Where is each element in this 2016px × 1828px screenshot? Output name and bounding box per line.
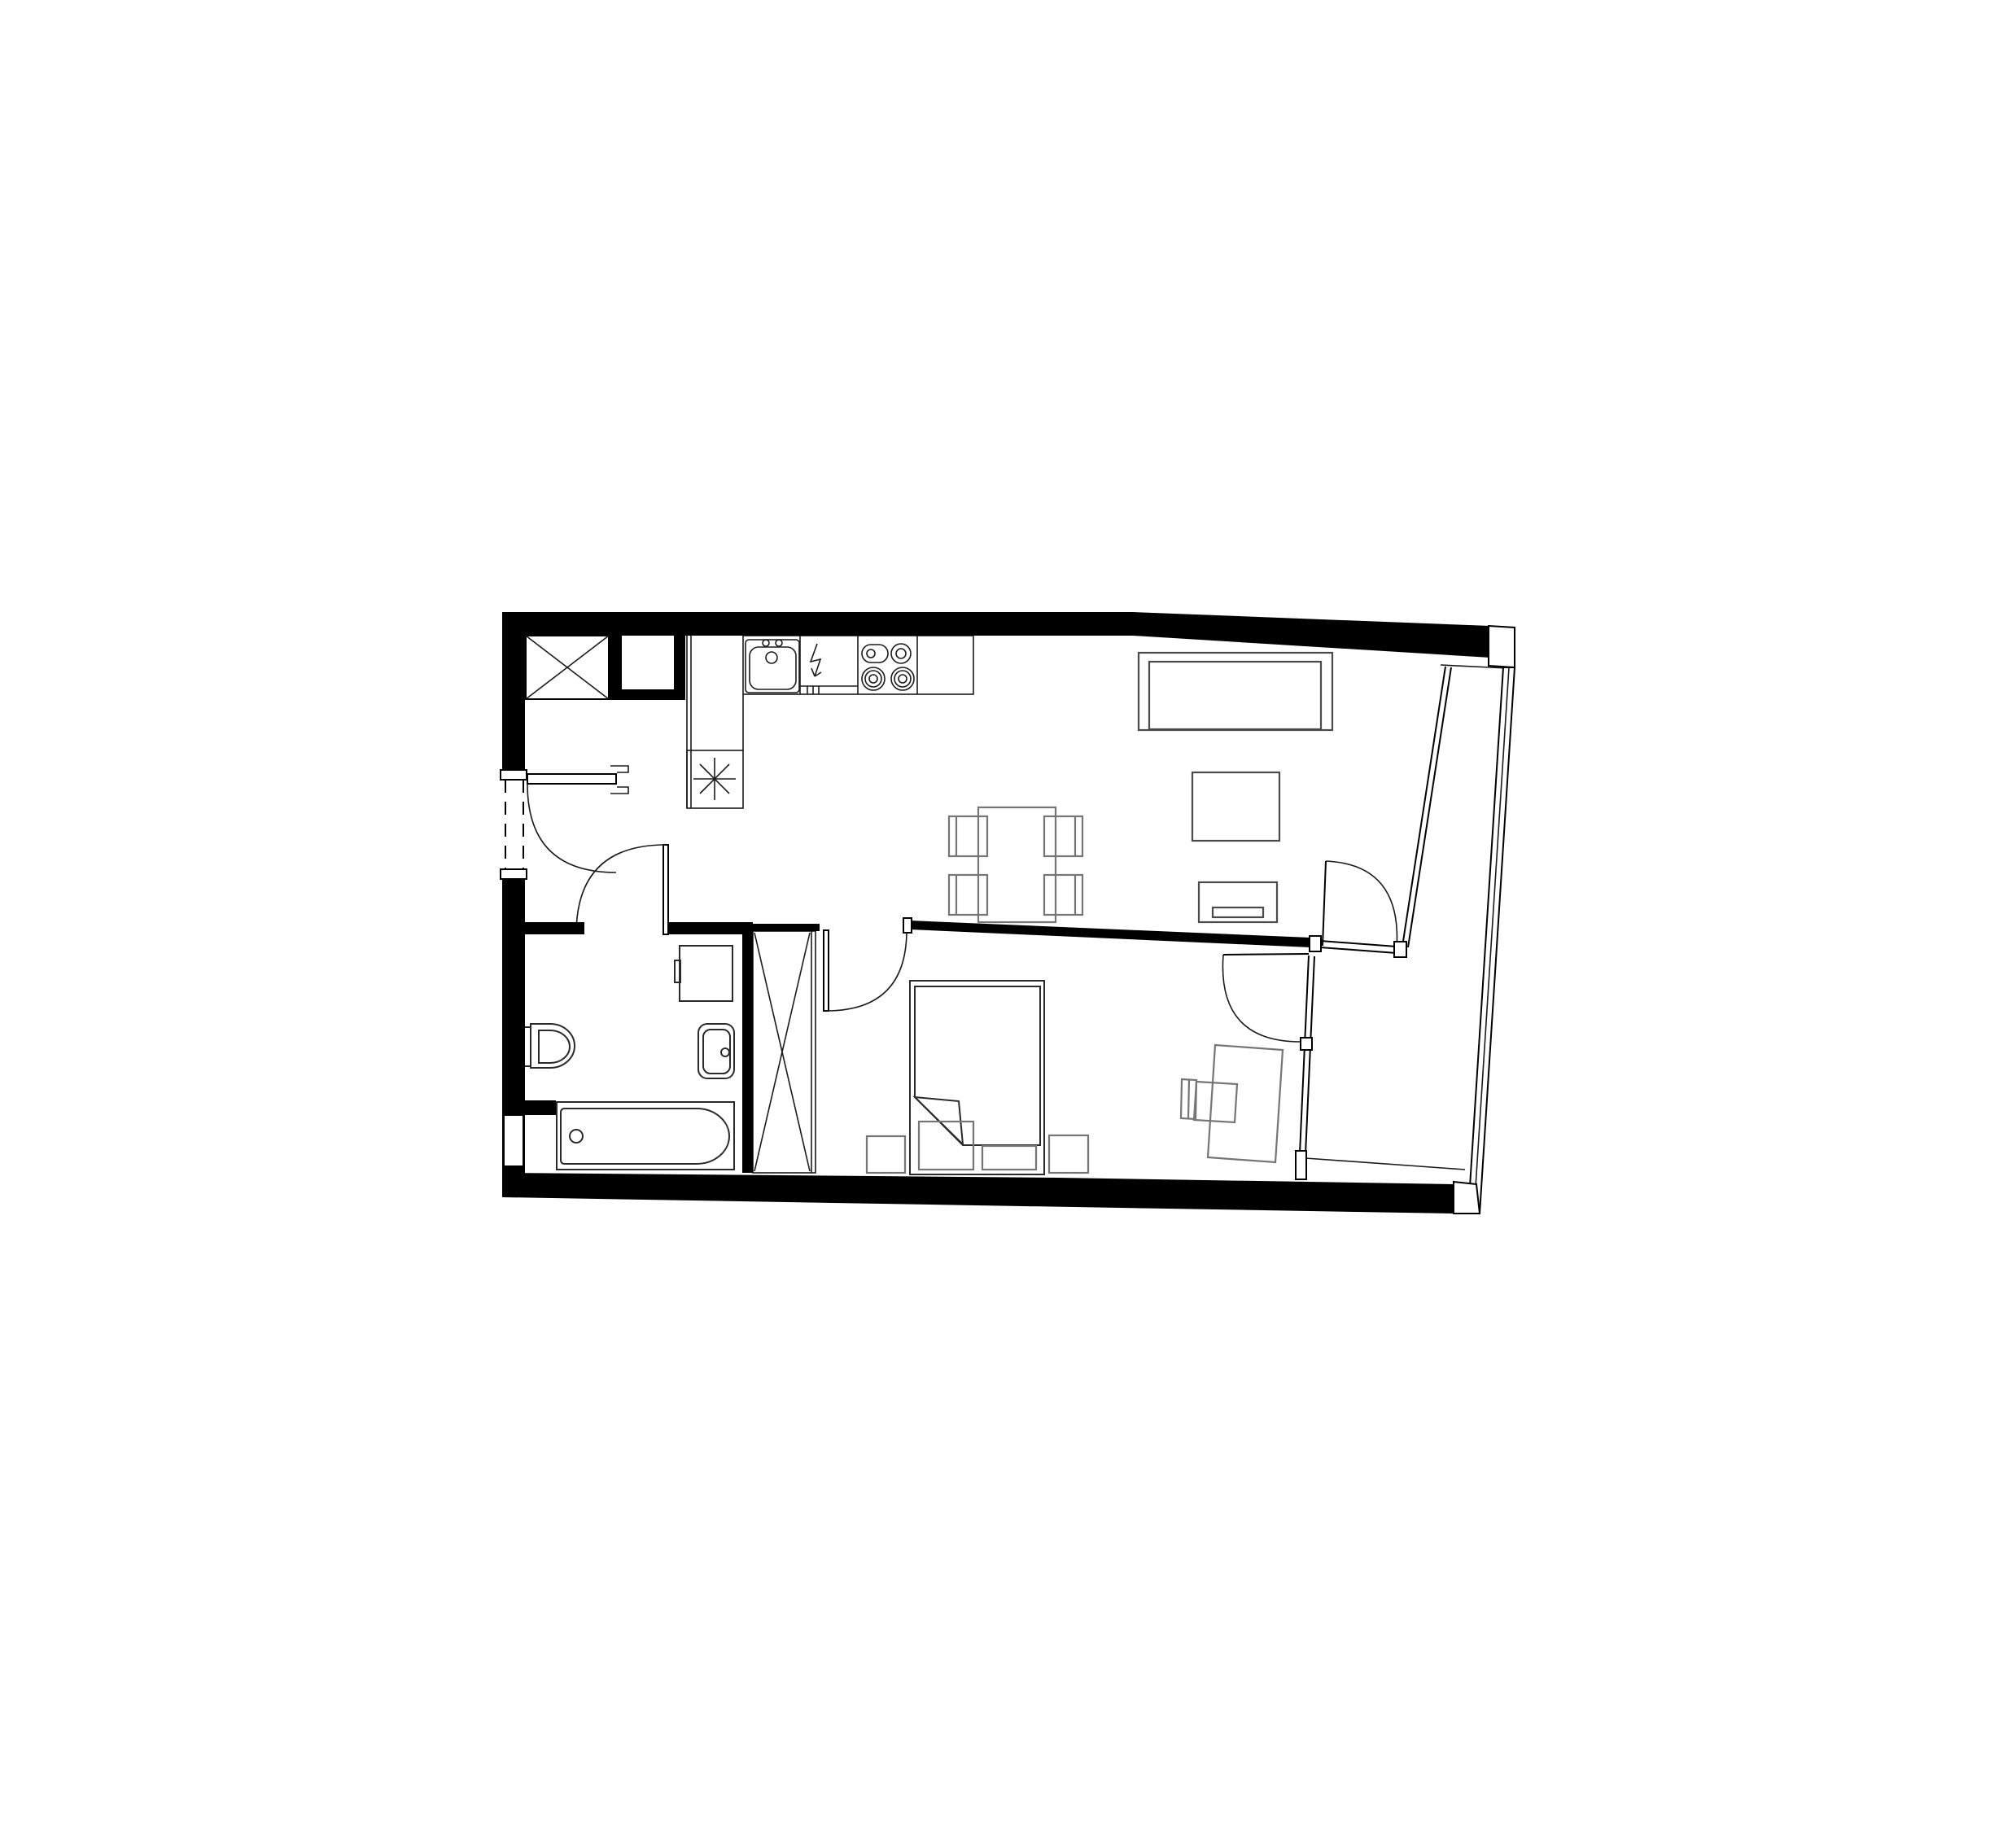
balcony-parapet <box>1305 667 1515 1214</box>
entry-door-swing-arc <box>527 784 616 872</box>
living-balcony-door-swing-arc <box>1326 861 1397 949</box>
cooktop-4-burners <box>862 644 914 690</box>
kitchen-counter-run <box>743 636 973 694</box>
wardrobe-closet <box>753 931 816 1173</box>
balcony-corner-pier <box>1489 626 1515 667</box>
pillar-a <box>609 636 622 700</box>
floor-plan-canvas: One-bedroom apartment floor plan <box>0 0 2016 1828</box>
kitchen-sink <box>746 640 799 693</box>
dining-chair <box>1044 816 1082 856</box>
wall-niche-low <box>504 1115 523 1166</box>
walls <box>502 612 1490 1214</box>
bench-cushion <box>982 1146 1036 1170</box>
door-jambs <box>501 626 1515 1179</box>
dining-chair <box>949 875 987 915</box>
bottom-wall <box>502 1173 1454 1214</box>
washing-machine <box>675 946 732 1001</box>
top-wall <box>502 612 1490 658</box>
bathroom-door <box>576 845 668 934</box>
bathroom-door-swing-arc <box>576 845 666 934</box>
bedroom-glazing-mid-jamb <box>1301 1038 1312 1050</box>
bedroom-balcony-door-swing-arc <box>1222 955 1302 1042</box>
bathroom-side-wall <box>742 934 753 1173</box>
balcony-parapet-corner <box>1454 1182 1480 1214</box>
bath-corner-stub <box>525 1100 556 1115</box>
bedroom-door-swing-arc <box>826 930 907 1011</box>
balcony-floor-edge <box>1305 1158 1465 1170</box>
partition-jamb-right <box>1310 936 1321 951</box>
nightstand <box>1049 1135 1088 1173</box>
entry-threshold-dashed <box>505 780 523 869</box>
floor-plan-svg: One-bedroom apartment floor plan <box>0 0 2016 1828</box>
wardrobe-head-wall <box>753 924 820 931</box>
bedroom-balcony-door <box>1222 954 1309 1042</box>
nightstand <box>867 1136 905 1173</box>
dining-chair <box>1044 875 1082 915</box>
bedroom-partition-wall <box>910 921 1310 947</box>
left-wall-upper <box>502 612 525 778</box>
bedroom-glazing-bottom-jamb <box>1296 1151 1306 1179</box>
tv-stand <box>1199 882 1277 922</box>
dishwasher-module <box>800 686 858 694</box>
floor-drain-asterisk-icon <box>693 758 736 800</box>
desk-chair <box>1181 1079 1237 1122</box>
service-shaft <box>526 636 609 699</box>
partition-jamb-left <box>903 918 912 933</box>
toilet <box>517 1024 575 1068</box>
bedroom-door <box>824 930 907 1011</box>
bathtub <box>557 1102 734 1170</box>
entry-jamb-top <box>501 770 527 780</box>
desk <box>1208 1045 1283 1162</box>
coffee-table <box>1192 772 1279 841</box>
balcony-door-jamb <box>1394 942 1406 957</box>
dining-chair <box>949 816 987 856</box>
bathroom-wall-right <box>669 922 753 934</box>
bathroom-wall-left <box>525 922 584 934</box>
living-balcony-door <box>1320 861 1397 953</box>
washbasin <box>698 1024 734 1078</box>
bedroom-window-wall <box>1300 956 1314 1154</box>
electrical-outlet-arrow-icon <box>811 644 821 676</box>
sofa <box>1139 653 1332 730</box>
niche-sill <box>622 689 685 700</box>
entry-jamb-bottom <box>501 869 527 879</box>
